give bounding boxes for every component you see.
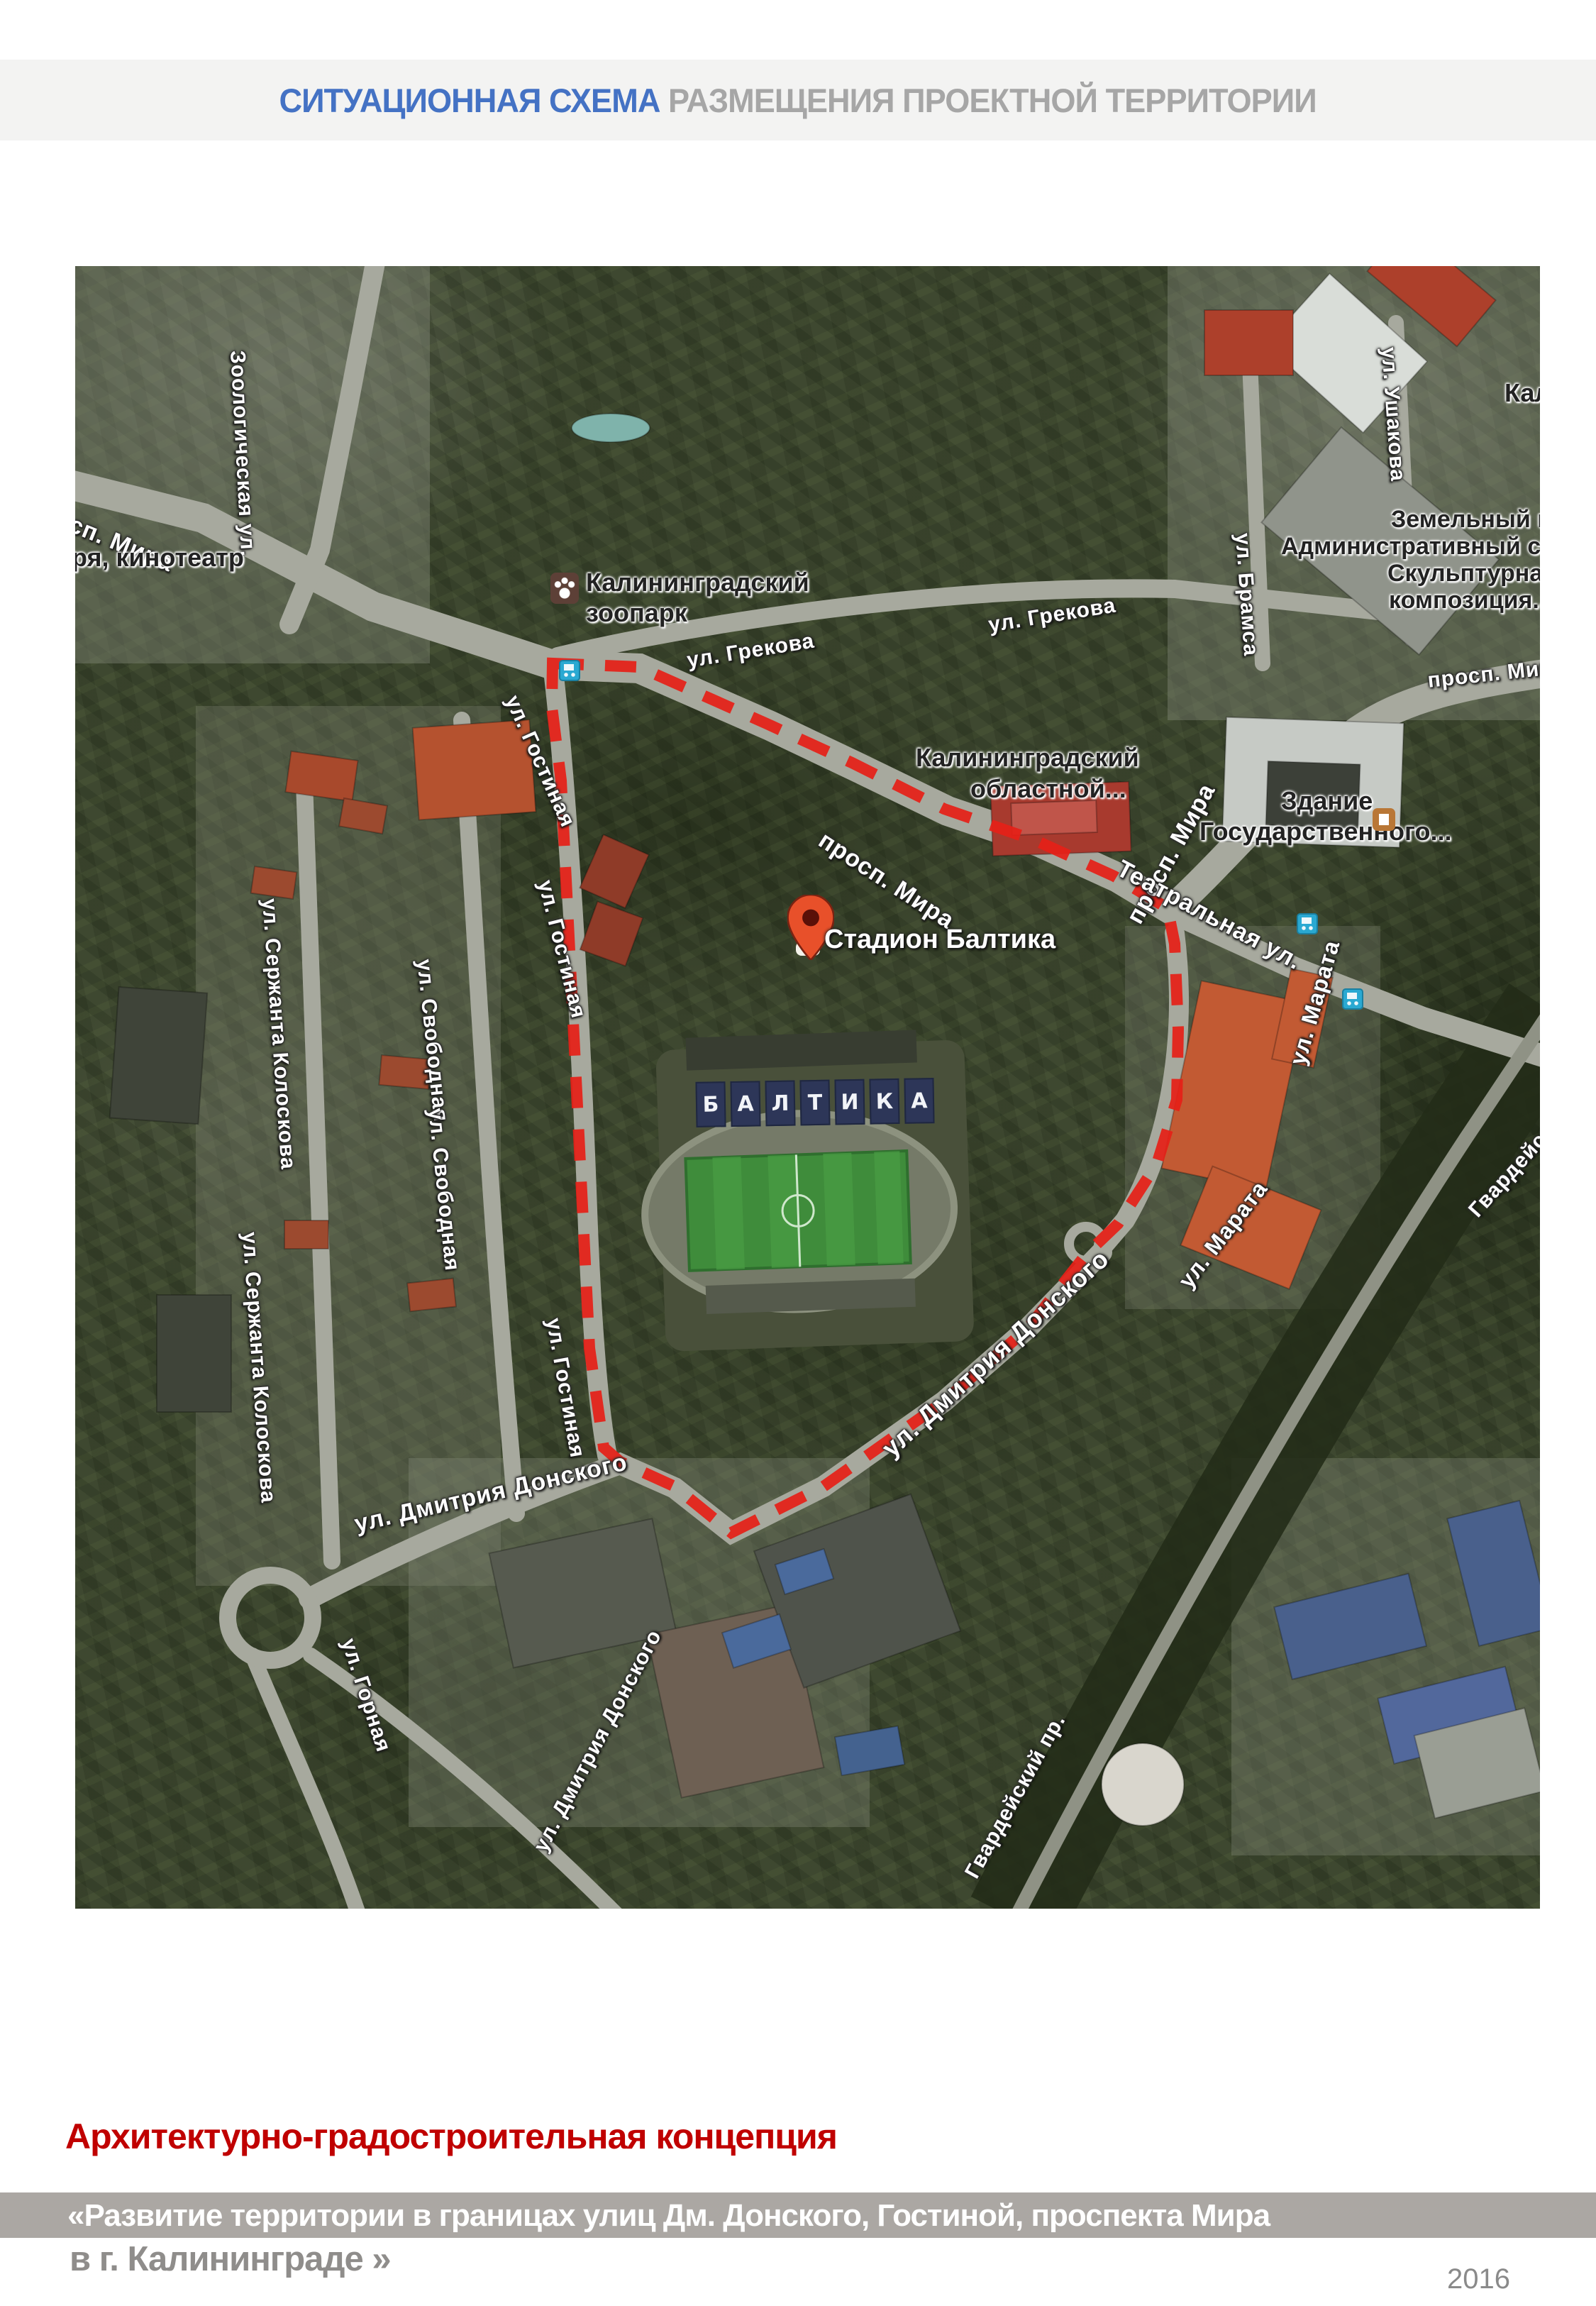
stadium-sign-letter: К bbox=[869, 1078, 899, 1125]
poi-label: композиция... bbox=[1389, 587, 1540, 614]
footer-band: «Развитие территории в границах улиц Дм.… bbox=[0, 2192, 1596, 2238]
poi-label: Здание bbox=[1281, 786, 1373, 816]
poi-label: областной... bbox=[970, 774, 1126, 804]
poi-label: зоопарк bbox=[586, 598, 687, 628]
poi-label: Кал bbox=[1504, 378, 1540, 408]
page-title-blue: СИТУАЦИОННАЯ СХЕМА bbox=[279, 82, 660, 119]
slide-page: СИТУАЦИОННАЯ СХЕМА РАЗМЕЩЕНИЯ ПРОЕКТНОЙ … bbox=[0, 0, 1596, 2306]
transit-stop-icon bbox=[559, 660, 580, 681]
poi-label: Калининградский bbox=[586, 568, 809, 597]
poi-label: Калининградский bbox=[916, 743, 1139, 773]
page-title: СИТУАЦИОННАЯ СХЕМА РАЗМЕЩЕНИЯ ПРОЕКТНОЙ … bbox=[279, 81, 1317, 120]
poi-label: ря, кинотеатр bbox=[75, 543, 244, 573]
stadium-sign-letter: А bbox=[904, 1078, 934, 1124]
government-building-icon bbox=[1373, 808, 1395, 831]
stadium-sign-letter: Б bbox=[695, 1081, 726, 1127]
poi-label: Государственного... bbox=[1199, 817, 1451, 846]
transit-stop-icon bbox=[1297, 913, 1318, 934]
stadium-sign-letter: Т bbox=[799, 1080, 830, 1126]
stadium-sign: Б А Л Т И К А bbox=[695, 1078, 934, 1127]
footer-band-line2: в г. Калининграде » bbox=[70, 2239, 391, 2279]
transit-stop-icon bbox=[1342, 988, 1363, 1010]
header-strip: СИТУАЦИОННАЯ СХЕМА РАЗМЕЩЕНИЯ ПРОЕКТНОЙ … bbox=[0, 60, 1596, 140]
stadium-sign-letter: И bbox=[834, 1079, 865, 1125]
poi-label: Скульптурная bbox=[1387, 560, 1540, 587]
concept-title: Архитектурно-градостроительная концепция bbox=[65, 2116, 837, 2157]
zoo-paw-icon bbox=[550, 573, 579, 604]
footer-band-line1: «Развитие территории в границах улиц Дм.… bbox=[67, 2198, 1270, 2234]
poi-label: Земельный и bbox=[1391, 506, 1540, 534]
satellite-map-image: Зоологическая ул. сп. Мира просп. Мира у… bbox=[75, 266, 1540, 1909]
stadium-sign-letter: Л bbox=[765, 1080, 795, 1126]
page-title-gray: РАЗМЕЩЕНИЯ ПРОЕКТНОЙ ТЕРРИТОРИИ bbox=[660, 82, 1317, 119]
year-label: 2016 bbox=[1447, 2263, 1510, 2295]
poi-label: Административный суд bbox=[1281, 533, 1540, 561]
stadium-sign-letter: А bbox=[730, 1081, 760, 1127]
stadium-marker-label: Стадион Балтика bbox=[824, 925, 1055, 955]
